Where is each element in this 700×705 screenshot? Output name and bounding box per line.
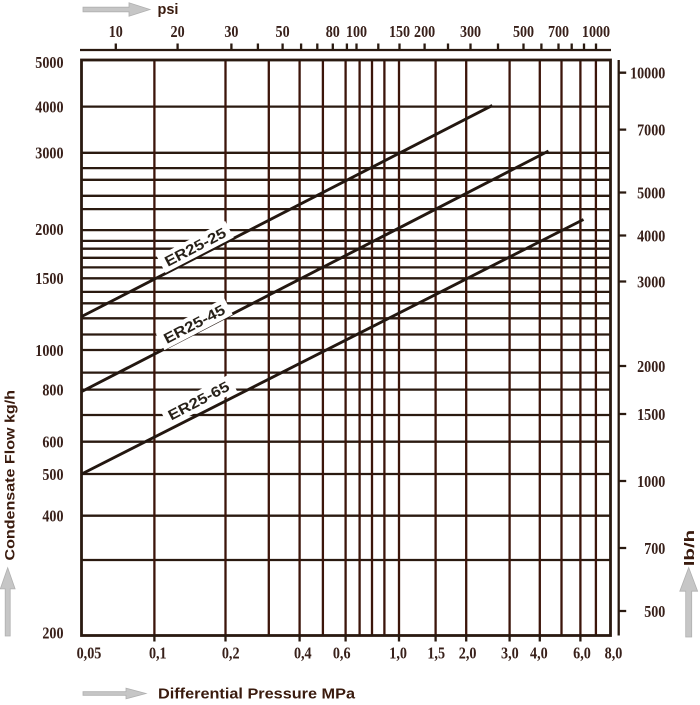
svg-text:2000: 2000 — [637, 357, 665, 376]
svg-text:5000: 5000 — [35, 53, 63, 72]
svg-text:5000: 5000 — [637, 183, 665, 202]
svg-text:300: 300 — [460, 22, 481, 41]
svg-text:ER25-45: ER25-45 — [161, 302, 228, 347]
svg-text:600: 600 — [42, 433, 63, 452]
svg-text:4000: 4000 — [35, 97, 63, 116]
svg-text:10000: 10000 — [630, 64, 665, 83]
svg-text:50: 50 — [276, 22, 290, 41]
svg-text:400: 400 — [42, 507, 63, 526]
svg-text:700: 700 — [644, 539, 665, 558]
svg-text:500: 500 — [42, 465, 63, 484]
svg-text:800: 800 — [42, 380, 63, 399]
svg-text:1,0: 1,0 — [389, 643, 407, 662]
svg-text:700: 700 — [548, 22, 569, 41]
svg-text:1000: 1000 — [35, 341, 63, 360]
svg-text:80: 80 — [326, 22, 340, 41]
svg-text:1000: 1000 — [582, 22, 610, 41]
svg-text:7000: 7000 — [637, 120, 665, 139]
svg-text:3000: 3000 — [637, 272, 665, 291]
svg-text:4,0: 4,0 — [530, 643, 548, 662]
svg-text:psi: psi — [158, 2, 179, 18]
svg-text:150: 150 — [389, 22, 410, 41]
svg-text:0,2: 0,2 — [222, 643, 240, 662]
svg-text:1000: 1000 — [637, 472, 665, 491]
svg-text:200: 200 — [414, 22, 435, 41]
svg-text:500: 500 — [513, 22, 534, 41]
svg-text:200: 200 — [42, 623, 63, 642]
svg-text:2,0: 2,0 — [459, 643, 477, 662]
svg-text:4000: 4000 — [637, 226, 665, 245]
svg-text:1500: 1500 — [35, 269, 63, 288]
svg-text:3,0: 3,0 — [501, 643, 519, 662]
svg-text:2000: 2000 — [35, 220, 63, 239]
svg-text:8,0: 8,0 — [605, 643, 623, 662]
svg-text:3000: 3000 — [35, 144, 63, 163]
svg-text:500: 500 — [644, 602, 665, 621]
svg-text:0,05: 0,05 — [77, 643, 102, 662]
svg-text:20: 20 — [171, 22, 185, 41]
svg-text:0,6: 0,6 — [333, 643, 351, 662]
svg-text:1500: 1500 — [637, 405, 665, 424]
svg-text:Condensate Flow kg/h: Condensate Flow kg/h — [3, 390, 19, 561]
svg-text:0,1: 0,1 — [149, 643, 167, 662]
svg-text:lb/h: lb/h — [682, 530, 698, 567]
svg-text:6,0: 6,0 — [573, 643, 591, 662]
svg-text:1,5: 1,5 — [427, 643, 445, 662]
svg-text:100: 100 — [346, 22, 367, 41]
svg-text:10: 10 — [109, 22, 123, 41]
svg-text:0,4: 0,4 — [294, 643, 312, 662]
svg-text:Differential Pressure MPa: Differential Pressure MPa — [158, 687, 356, 703]
svg-text:30: 30 — [224, 22, 238, 41]
